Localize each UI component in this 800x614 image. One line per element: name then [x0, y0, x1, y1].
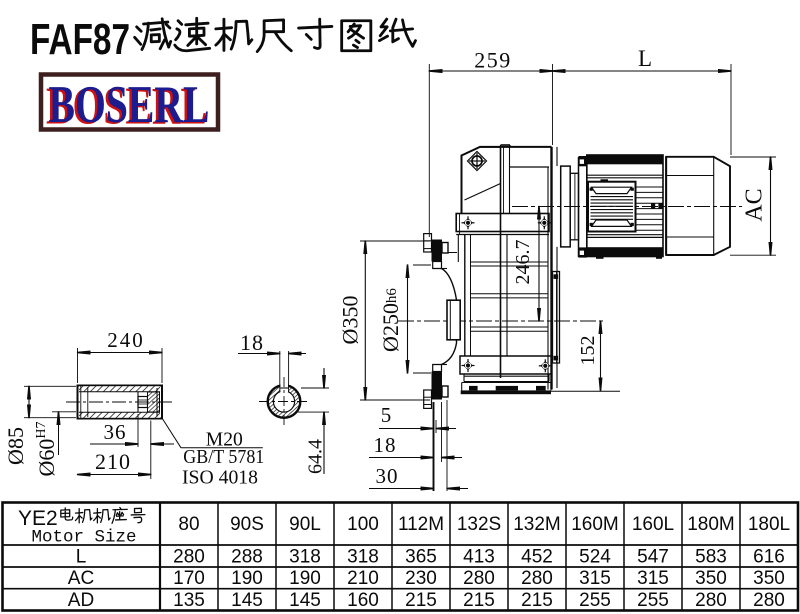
- svg-text:36: 36: [104, 420, 127, 444]
- svg-text:318: 318: [347, 547, 379, 568]
- svg-text:152: 152: [577, 336, 599, 366]
- svg-text:145: 145: [289, 590, 321, 611]
- svg-text:L: L: [638, 46, 652, 71]
- svg-text:318: 318: [289, 547, 321, 568]
- svg-text:100: 100: [347, 514, 379, 535]
- svg-text:215: 215: [463, 590, 495, 611]
- svg-text:524: 524: [579, 547, 611, 568]
- svg-text:160L: 160L: [632, 514, 674, 535]
- svg-text:ISO 4018: ISO 4018: [182, 466, 258, 488]
- svg-text:180L: 180L: [748, 514, 790, 535]
- svg-text:350: 350: [753, 568, 785, 589]
- svg-text:452: 452: [521, 547, 553, 568]
- svg-text:547: 547: [637, 547, 669, 568]
- svg-text:BOSERL: BOSERL: [49, 76, 210, 134]
- svg-text:255: 255: [579, 590, 611, 611]
- svg-text:64.4: 64.4: [305, 439, 327, 474]
- svg-text:145: 145: [231, 590, 263, 611]
- svg-text:30: 30: [376, 464, 399, 488]
- svg-text:132S: 132S: [457, 514, 501, 535]
- svg-text:365: 365: [405, 547, 437, 568]
- svg-text:583: 583: [695, 547, 727, 568]
- svg-text:413: 413: [463, 547, 495, 568]
- svg-text:FAF87: FAF87: [30, 15, 130, 64]
- svg-text:AC: AC: [68, 568, 94, 589]
- svg-text:112M: 112M: [398, 514, 444, 535]
- svg-text:280: 280: [695, 590, 727, 611]
- svg-text:280: 280: [173, 547, 205, 568]
- svg-text:315: 315: [637, 568, 669, 589]
- svg-text:280: 280: [753, 590, 785, 611]
- svg-text:AC: AC: [742, 188, 768, 221]
- svg-text:80: 80: [178, 514, 199, 535]
- svg-text:215: 215: [521, 590, 553, 611]
- svg-text:Ø350: Ø350: [338, 296, 363, 345]
- svg-text:132M: 132M: [513, 514, 561, 535]
- svg-text:GB/T 5781: GB/T 5781: [183, 446, 264, 468]
- svg-text:280: 280: [521, 568, 553, 589]
- svg-text:215: 215: [405, 590, 437, 611]
- svg-text:315: 315: [579, 568, 611, 589]
- svg-text:AD: AD: [68, 590, 94, 611]
- svg-text:190: 190: [231, 568, 263, 589]
- svg-text:255: 255: [637, 590, 669, 611]
- svg-text:90S: 90S: [230, 514, 264, 535]
- svg-text:616: 616: [753, 547, 785, 568]
- svg-text:18: 18: [374, 433, 397, 457]
- svg-text:246.7: 246.7: [512, 240, 534, 285]
- svg-text:Motor Size: Motor Size: [31, 528, 136, 548]
- svg-text:190: 190: [289, 568, 321, 589]
- svg-text:Ø85: Ø85: [3, 427, 28, 465]
- svg-text:288: 288: [231, 547, 263, 568]
- svg-text:350: 350: [695, 568, 727, 589]
- svg-text:230: 230: [405, 568, 437, 589]
- svg-text:170: 170: [173, 568, 205, 589]
- svg-text:90L: 90L: [289, 514, 321, 535]
- svg-text:160: 160: [347, 590, 379, 611]
- svg-text:160M: 160M: [571, 514, 619, 535]
- svg-text:210: 210: [347, 568, 379, 589]
- svg-text:259: 259: [474, 48, 512, 73]
- svg-text:18: 18: [240, 330, 264, 355]
- svg-text:L: L: [76, 547, 87, 568]
- svg-text:280: 280: [463, 568, 495, 589]
- svg-text:240: 240: [107, 328, 145, 352]
- svg-text:210: 210: [95, 449, 131, 474]
- svg-text:180M: 180M: [687, 514, 735, 535]
- svg-text:135: 135: [173, 590, 205, 611]
- svg-text:5: 5: [381, 403, 392, 427]
